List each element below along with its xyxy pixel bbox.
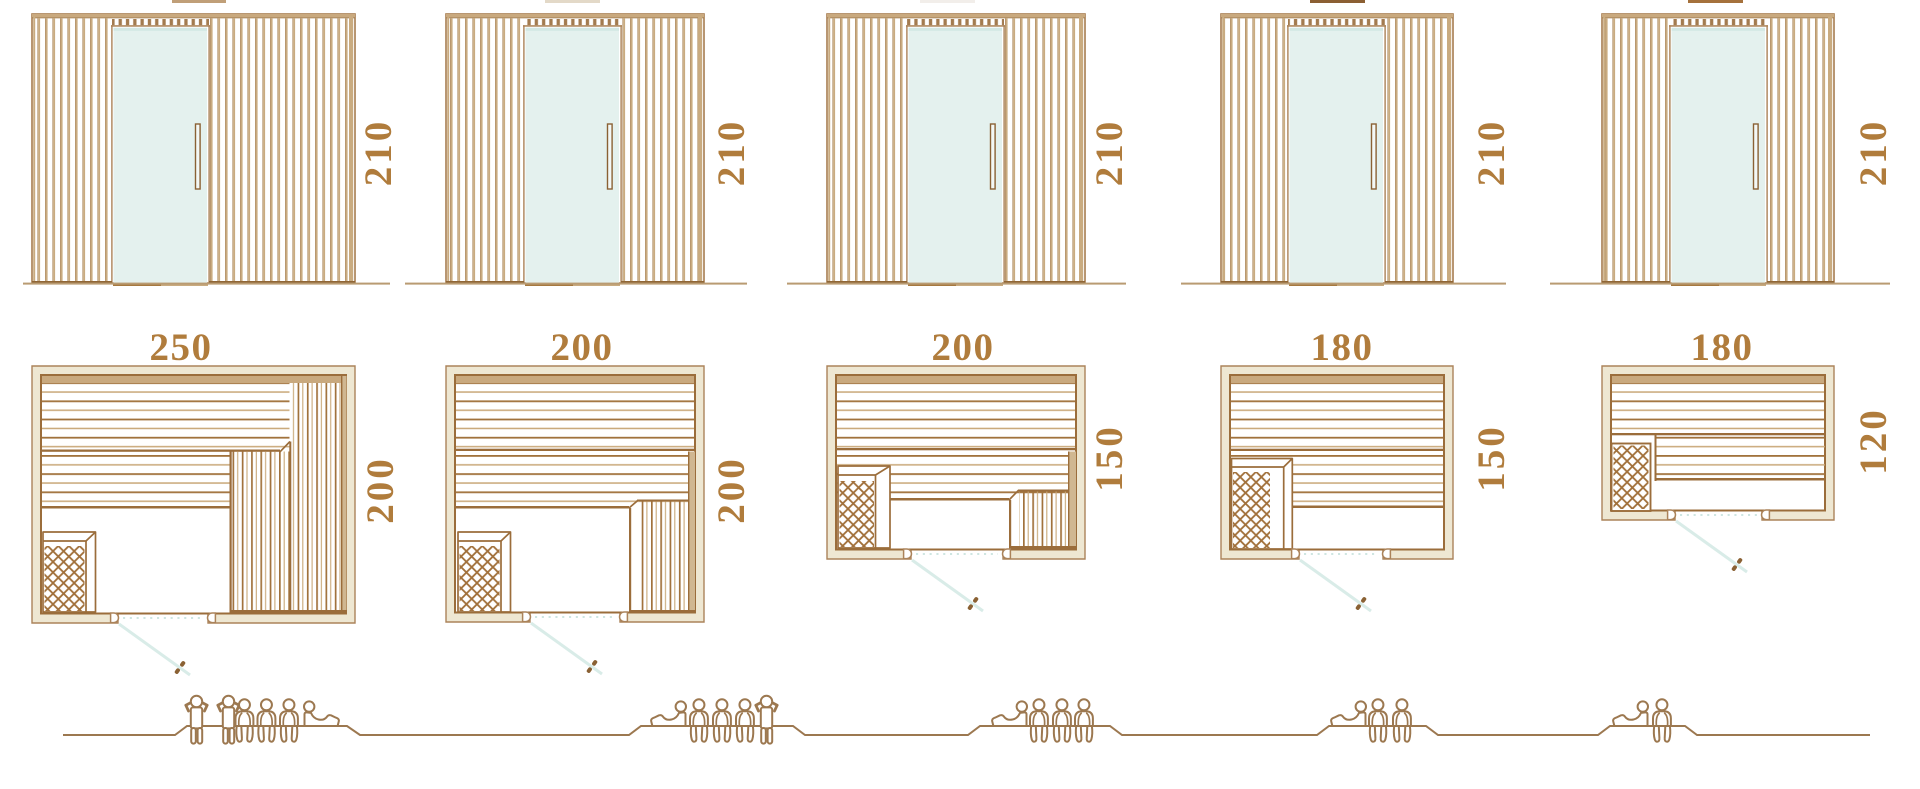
- svg-text:200: 200: [710, 456, 753, 524]
- svg-text:210: 210: [1088, 119, 1131, 187]
- svg-text:210: 210: [1852, 119, 1895, 187]
- svg-text:150: 150: [1470, 424, 1513, 492]
- svg-text:210: 210: [710, 119, 753, 187]
- svg-text:200: 200: [932, 326, 995, 369]
- svg-text:210: 210: [357, 119, 400, 187]
- svg-text:180: 180: [1691, 326, 1754, 369]
- svg-text:210: 210: [1470, 119, 1513, 187]
- svg-text:200: 200: [359, 456, 402, 524]
- svg-text:200: 200: [551, 326, 614, 369]
- svg-text:180: 180: [1311, 326, 1374, 369]
- svg-text:250: 250: [150, 326, 213, 369]
- svg-text:150: 150: [1088, 424, 1131, 492]
- svg-text:120: 120: [1852, 407, 1895, 475]
